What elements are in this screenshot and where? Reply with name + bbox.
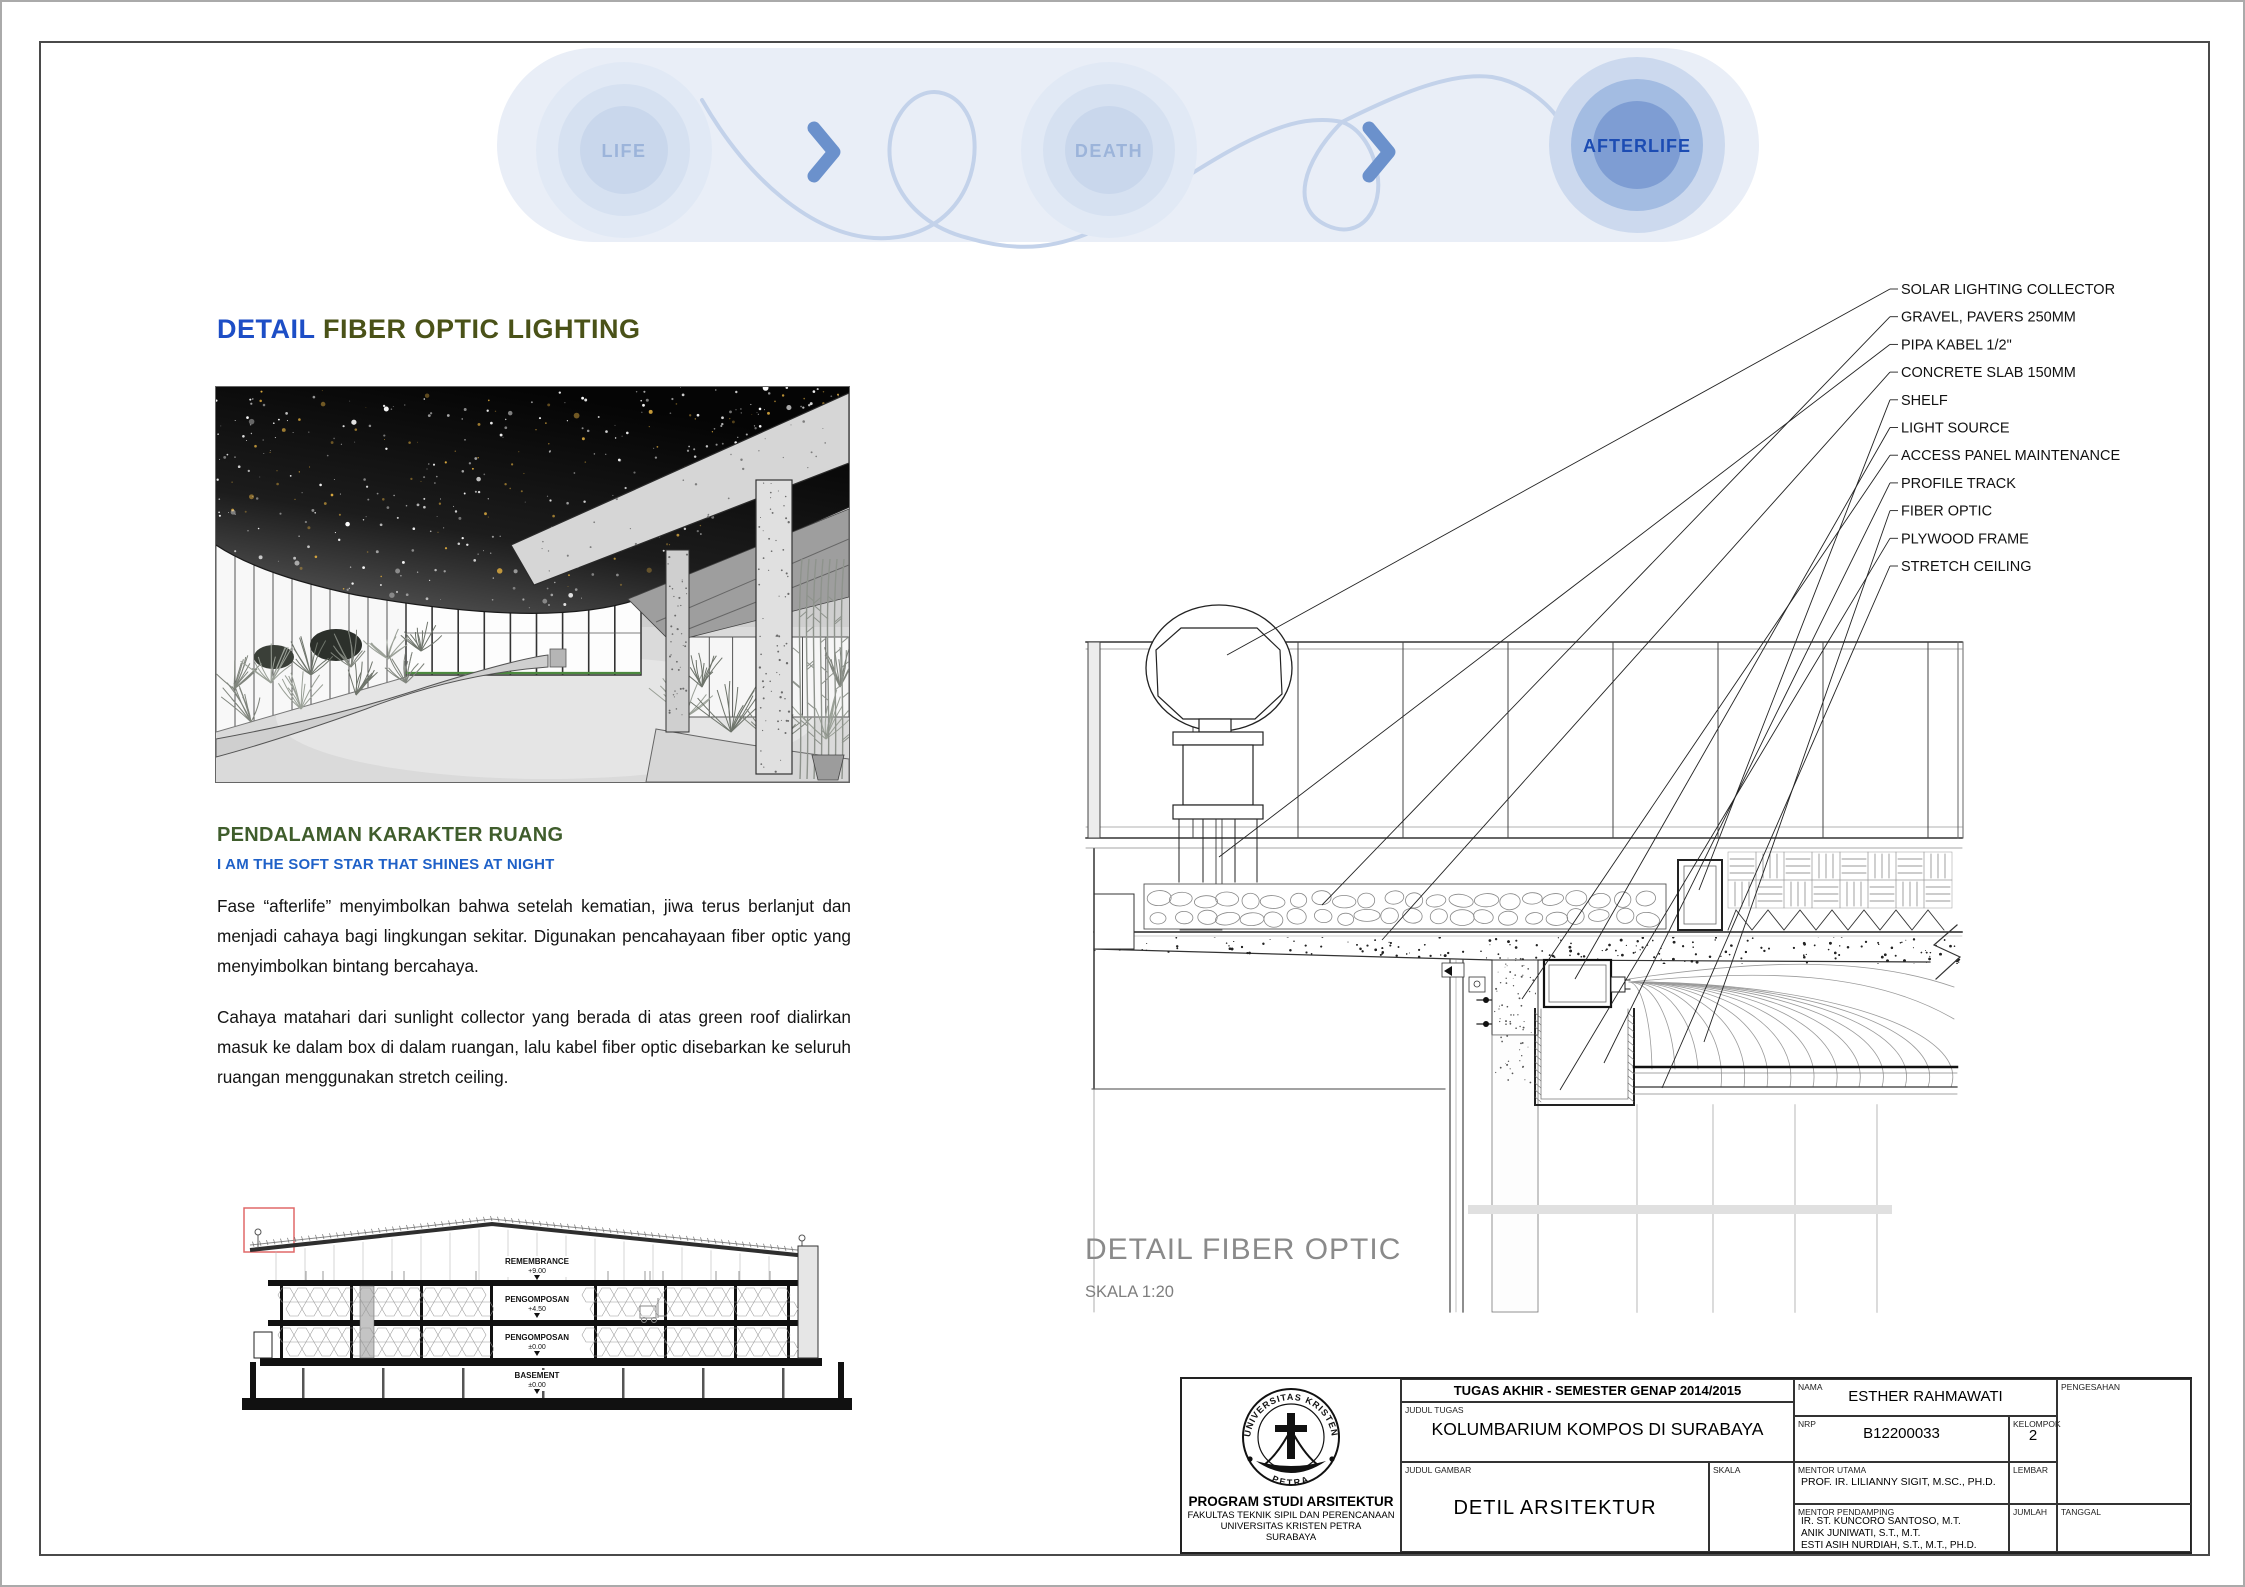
callout-label: FIBER OPTIC <box>1901 504 1992 520</box>
shelf-detail <box>1678 860 1722 930</box>
nrp-label: NRP <box>1798 1419 1816 1429</box>
university-name: UNIVERSITAS KRISTEN PETRA <box>1182 1521 1400 1532</box>
callout-label: SOLAR LIGHTING COLLECTOR <box>1901 282 2115 298</box>
student-id: B12200033 <box>1795 1417 2008 1442</box>
section-heading: PENDALAMAN KARAKTER RUANG <box>217 824 563 847</box>
callout-label: ACCESS PANEL MAINTENANCE <box>1901 448 2120 464</box>
flow-node-afterlife-label: AFTERLIFE <box>1583 136 1691 156</box>
flow-node-death-label: DEATH <box>1075 141 1143 161</box>
svg-text:REMEMBRANCE: REMEMBRANCE <box>505 1257 570 1266</box>
callout-label: SHELF <box>1901 393 1948 409</box>
judul-gambar-label: JUDUL GAMBAR <box>1405 1465 1471 1475</box>
page-title-detail: DETAIL <box>217 314 315 344</box>
nama-label: NAMA <box>1798 1382 1823 1392</box>
detail-title: DETAIL FIBER OPTIC <box>1085 1233 1401 1266</box>
svg-text:BASEMENT: BASEMENT <box>515 1371 560 1380</box>
svg-text:+9.00: +9.00 <box>528 1268 546 1275</box>
mentor-utama-cell: MENTOR UTAMA PROF. IR. LILIANNY SIGIT, M… <box>1794 1462 2009 1504</box>
svg-text:PENGOMPOSAN: PENGOMPOSAN <box>505 1333 569 1342</box>
callout-label: STRETCH CEILING <box>1901 559 2032 575</box>
jumlah-cell: JUMLAH <box>2009 1504 2057 1552</box>
svg-text:PETRA: PETRA <box>1271 1474 1312 1487</box>
cross-icon <box>1247 1413 1334 1473</box>
break-symbol <box>1934 925 1960 979</box>
building-section-drawing: REMEMBRANCE +9.00 PENGOMPOSAN +4.50 PENG… <box>242 1202 852 1452</box>
flow-node-life-label: LIFE <box>602 141 647 161</box>
pengesahan-label: PENGESAHAN <box>2061 1382 2120 1392</box>
section-subheading: I AM THE SOFT STAR THAT SHINES AT NIGHT <box>217 856 555 873</box>
svg-text:+4.50: +4.50 <box>528 1306 546 1313</box>
callout-label: PIPA KABEL 1/2" <box>1901 337 2012 353</box>
pengesahan-cell: PENGESAHAN <box>2057 1379 2192 1504</box>
flow-node-death: DEATH <box>1021 62 1197 238</box>
skala-label: SKALA <box>1713 1465 1740 1475</box>
svg-text:PENGOMPOSAN: PENGOMPOSAN <box>505 1295 569 1304</box>
judul-gambar-cell: JUDUL GAMBAR DETIL ARSITEKTUR <box>1401 1462 1709 1552</box>
detail-callouts: SOLAR LIGHTING COLLECTORGRAVEL, PAVERS 2… <box>1901 282 2120 575</box>
presentation-sheet: LIFE DEATH AFTERLIFE DETAIL FIBER OPTIC … <box>0 0 2245 1587</box>
mentor-pendamping-label: MENTOR PENDAMPING <box>1798 1507 1894 1517</box>
faculty-name: FAKULTAS TEKNIK SIPIL DAN PERENCANAAN <box>1182 1510 1400 1521</box>
plant-pot <box>550 649 566 667</box>
callout-label: GRAVEL, PAVERS 250MM <box>1901 310 2076 326</box>
fiber-optic-detail-drawing: SOLAR LIGHTING COLLECTORGRAVEL, PAVERS 2… <box>1052 257 2212 1332</box>
callout-label: PROFILE TRACK <box>1901 476 2016 492</box>
institution-cell: UNIVERSITAS KRISTEN PETRA PROGRAM STUDI … <box>1182 1379 1401 1552</box>
concrete-column-far <box>666 550 689 732</box>
city-name: SURABAYA <box>1182 1532 1400 1543</box>
tanggal-cell: TANGGAL <box>2057 1504 2192 1552</box>
callout-label: CONCRETE SLAB 150MM <box>1901 365 2076 381</box>
title-block: UNIVERSITAS KRISTEN PETRA PROGRAM STUDI … <box>1180 1377 2192 1554</box>
nama-cell: NAMA ESTHER RAHMAWATI <box>1794 1379 2057 1416</box>
skala-cell: SKALA <box>1709 1462 1794 1552</box>
judul-tugas-label: JUDUL TUGAS <box>1405 1405 1464 1415</box>
project-title: KOLUMBARIUM KOMPOS DI SURABAYA <box>1402 1413 1793 1440</box>
mentor-pendamping-2: ANIK JUNIWATI, S.T., M.T. <box>1801 1528 2008 1540</box>
flow-node-afterlife: AFTERLIFE <box>1549 57 1725 233</box>
access-panel-channel <box>1535 1009 1634 1105</box>
solar-collector <box>1146 605 1292 930</box>
fiber-optic-cables <box>1629 964 1954 1087</box>
mentor-pendamping-1: IR. ST. KUNCORO SANTOSO, M.T. <box>1801 1516 2008 1528</box>
jumlah-label: JUMLAH <box>2013 1507 2047 1517</box>
kelompok-cell: KELOMPOK 2 <box>2009 1416 2057 1462</box>
nrp-cell: NRP B12200033 <box>1794 1416 2009 1462</box>
svg-text:±0.00: ±0.00 <box>528 1344 546 1351</box>
tanggal-label: TANGGAL <box>2061 1507 2101 1517</box>
detail-linework <box>1086 605 1963 1312</box>
body-paragraph-1: Fase “afterlife” menyimbolkan bahwa sete… <box>217 891 851 981</box>
callout-label: LIGHT SOURCE <box>1901 421 2010 437</box>
callout-label: PLYWOOD FRAME <box>1901 531 2029 547</box>
kelompok-label: KELOMPOK <box>2013 1419 2061 1429</box>
drawing-title: DETIL ARSITEKTUR <box>1402 1497 1708 1520</box>
university-seal-logo: UNIVERSITAS KRISTEN PETRA <box>1182 1379 1401 1487</box>
titleblock-header: TUGAS AKHIR - SEMESTER GENAP 2014/2015 <box>1401 1379 1794 1402</box>
detail-scale: SKALA 1:20 <box>1085 1283 1174 1301</box>
plant-pot <box>812 755 844 780</box>
concrete-column-near <box>756 480 792 774</box>
student-name: ESTHER RAHMAWATI <box>1795 1380 2056 1405</box>
mentor-utama-label: MENTOR UTAMA <box>1798 1465 1866 1475</box>
interior-render-image <box>215 386 850 783</box>
page-title-subject: FIBER OPTIC LIGHTING <box>323 314 641 344</box>
mentor-pendamping-3: ESTI ASIH NURDIAH, S.T., M.T., PH.D. <box>1801 1540 2008 1552</box>
logo-arc-text-bottom: PETRA <box>1271 1474 1312 1487</box>
lembar-label: LEMBAR <box>2013 1465 2048 1475</box>
judul-tugas-cell: JUDUL TUGAS KOLUMBARIUM KOMPOS DI SURABA… <box>1401 1402 1794 1462</box>
flow-node-life: LIFE <box>536 62 712 238</box>
lembar-cell: LEMBAR <box>2009 1462 2057 1504</box>
svg-text:±0.00: ±0.00 <box>528 1382 546 1389</box>
mentor-pendamping-cell: MENTOR PENDAMPING IR. ST. KUNCORO SANTOS… <box>1794 1504 2009 1552</box>
body-paragraph-2: Cahaya matahari dari sunlight collector … <box>217 1002 851 1092</box>
light-source-box <box>1544 960 1630 1007</box>
lifecycle-flow-diagram: LIFE DEATH AFTERLIFE <box>422 32 1822 272</box>
program-name: PROGRAM STUDI ARSITEKTUR <box>1182 1494 1400 1509</box>
page-title: DETAIL FIBER OPTIC LIGHTING <box>217 314 641 345</box>
